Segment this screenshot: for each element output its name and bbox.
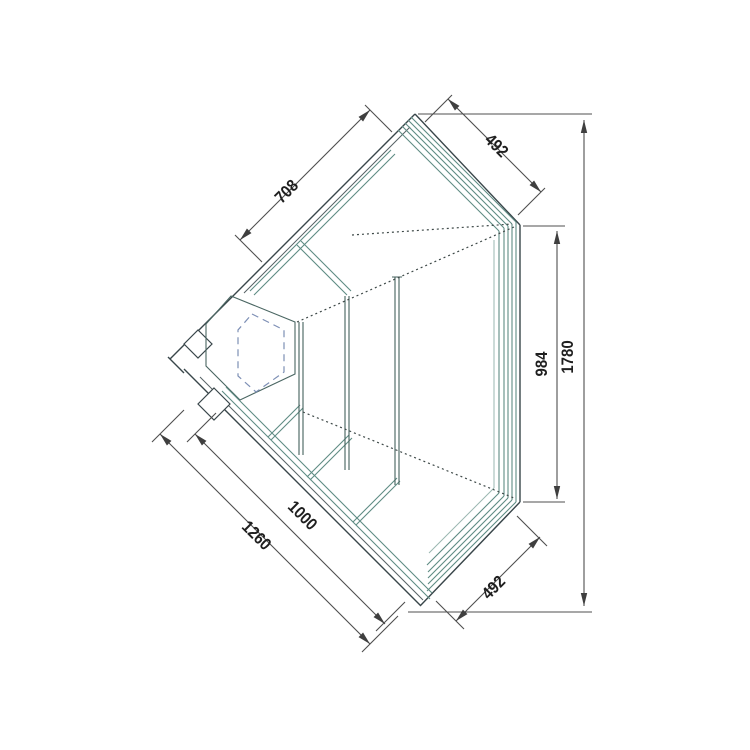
- hidden-dashed-outline: [238, 314, 284, 392]
- dim-1780-arrow-b: [581, 593, 587, 606]
- dim-984-arrow-a: [554, 231, 560, 244]
- mullions: [299, 277, 402, 485]
- dimension-label-1780: 1780: [559, 340, 577, 373]
- rim-dotted-lines: [297, 224, 514, 498]
- corner-pillar: [206, 296, 295, 400]
- glass-panels-right-side: [499, 222, 516, 502]
- dimension-label-492-bottom: 492: [479, 573, 509, 603]
- corner-display-case-plan-drawing: 708 492 984 1780 1000 1260: [0, 0, 750, 750]
- dimension-708: 708: [235, 105, 392, 262]
- dimension-label-708: 708: [272, 177, 302, 207]
- dimension-1260: 1260: [152, 410, 398, 652]
- glass-panel-inner-light: [429, 240, 494, 553]
- dimension-1000: 1000: [187, 413, 405, 631]
- glass-panels-top-right: [398, 117, 516, 231]
- dim-708-lines: [235, 105, 392, 262]
- dim-1260-lines: [152, 410, 398, 652]
- dimension-label-492-top: 492: [481, 131, 511, 161]
- dim-1780-arrow-a: [581, 120, 587, 133]
- dimension-label-1260: 1260: [238, 518, 274, 554]
- dimension-1780: 1780: [408, 114, 592, 612]
- dimension-label-984: 984: [533, 351, 551, 376]
- dim-984-arrow-b: [554, 486, 560, 499]
